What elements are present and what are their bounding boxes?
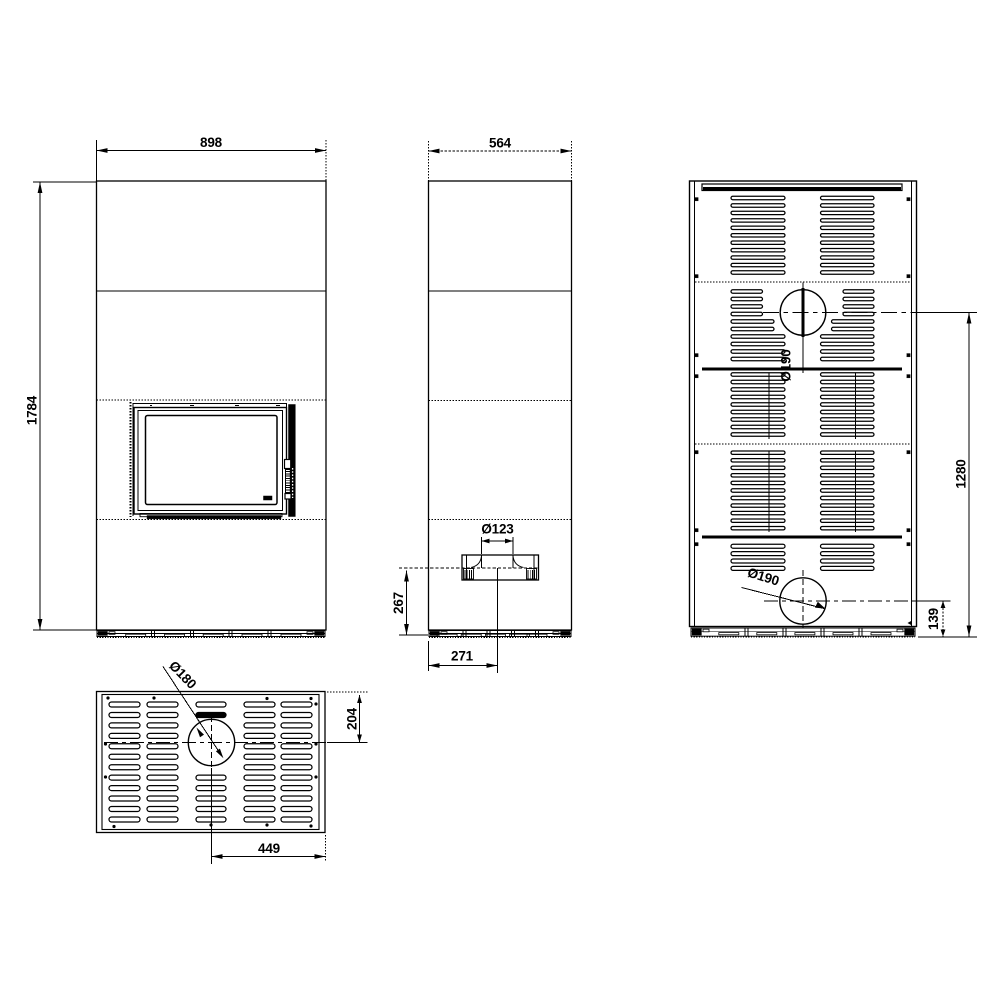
svg-text:1280: 1280 [954, 459, 969, 488]
svg-text:Ø123: Ø123 [481, 522, 514, 537]
svg-text:139: 139 [926, 608, 941, 630]
svg-text:898: 898 [200, 135, 223, 150]
svg-text:564: 564 [489, 136, 512, 151]
svg-text:449: 449 [258, 841, 280, 856]
svg-text:Ø190: Ø190 [779, 349, 794, 381]
svg-text:1784: 1784 [25, 395, 40, 425]
svg-text:204: 204 [345, 707, 360, 730]
svg-text:271: 271 [451, 649, 474, 664]
svg-text:267: 267 [391, 592, 406, 614]
